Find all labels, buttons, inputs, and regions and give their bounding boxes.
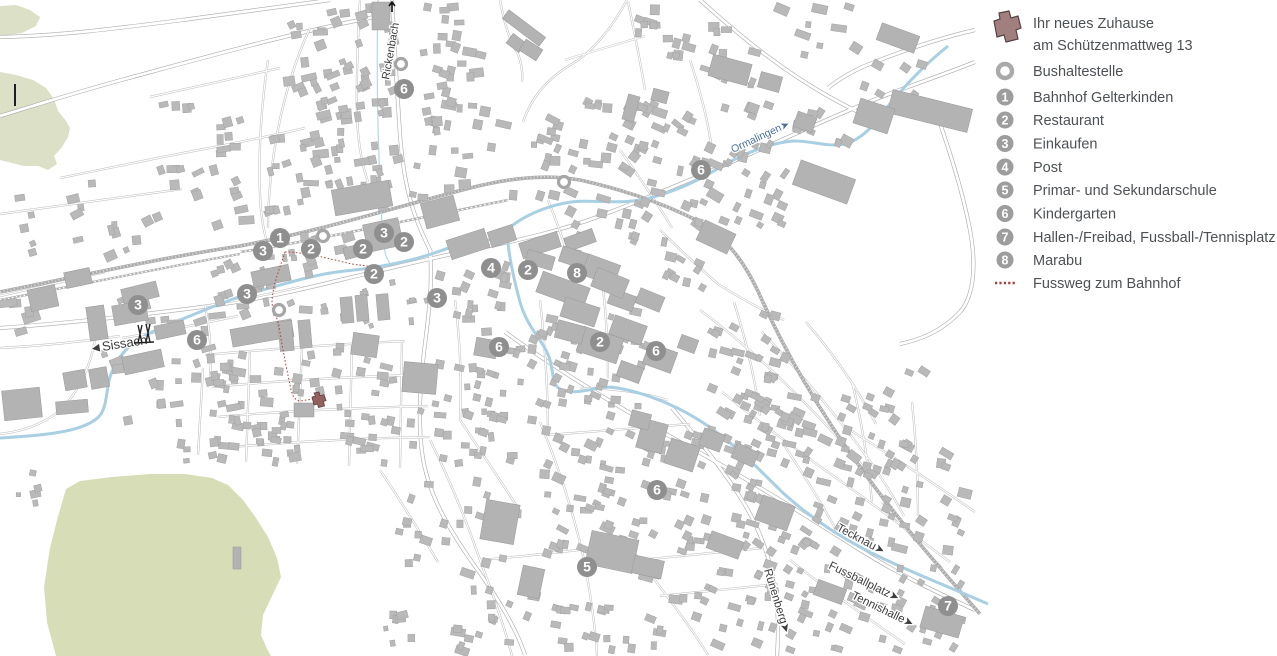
svg-text:Ihr neues Zuhause: Ihr neues Zuhause xyxy=(1033,16,1154,32)
svg-text:2: 2 xyxy=(307,241,315,257)
svg-text:1: 1 xyxy=(276,230,284,246)
svg-text:Bahnhof Gelterkinden: Bahnhof Gelterkinden xyxy=(1033,90,1173,106)
svg-text:6: 6 xyxy=(697,162,705,178)
svg-text:8: 8 xyxy=(573,265,581,281)
svg-text:7: 7 xyxy=(944,598,952,614)
svg-text:5: 5 xyxy=(583,559,591,575)
svg-text:Hallen-/Freibad, Fussball-/Ten: Hallen-/Freibad, Fussball-/Tennisplatz xyxy=(1033,230,1276,246)
svg-text:2: 2 xyxy=(596,334,604,350)
svg-text:2: 2 xyxy=(1002,113,1009,127)
svg-text:3: 3 xyxy=(380,225,388,241)
svg-text:7: 7 xyxy=(1002,230,1009,244)
svg-text:8: 8 xyxy=(1002,253,1009,267)
svg-text:1: 1 xyxy=(1002,90,1009,104)
svg-text:3: 3 xyxy=(433,290,441,306)
svg-text:6: 6 xyxy=(193,332,201,348)
svg-text:2: 2 xyxy=(524,262,532,278)
svg-text:3: 3 xyxy=(134,297,142,313)
svg-text:2: 2 xyxy=(370,266,378,282)
svg-text:Restaurant: Restaurant xyxy=(1033,113,1104,129)
svg-text:Post: Post xyxy=(1033,160,1062,176)
svg-text:6: 6 xyxy=(1002,207,1009,221)
svg-text:6: 6 xyxy=(400,81,408,97)
svg-text:Marabu: Marabu xyxy=(1033,253,1082,269)
svg-text:5: 5 xyxy=(1002,183,1009,197)
svg-text:Kindergarten: Kindergarten xyxy=(1033,207,1116,223)
svg-text:2: 2 xyxy=(400,234,408,250)
svg-text:am Schützenmattweg 13: am Schützenmattweg 13 xyxy=(1033,38,1193,54)
svg-text:6: 6 xyxy=(653,482,661,498)
svg-text:Primar- und Sekundarschule: Primar- und Sekundarschule xyxy=(1033,183,1217,199)
svg-text:4: 4 xyxy=(487,260,495,276)
svg-text:2: 2 xyxy=(359,241,367,257)
svg-text:Einkaufen: Einkaufen xyxy=(1033,137,1098,153)
svg-text:Fussweg zum Bahnhof: Fussweg zum Bahnhof xyxy=(1033,276,1181,292)
svg-text:3: 3 xyxy=(243,286,251,302)
svg-text:4: 4 xyxy=(1002,160,1009,174)
svg-text:6: 6 xyxy=(495,339,503,355)
svg-text:6: 6 xyxy=(652,343,660,359)
svg-text:3: 3 xyxy=(1002,137,1009,151)
svg-text:3: 3 xyxy=(259,243,267,259)
svg-text:Bushaltestelle: Bushaltestelle xyxy=(1033,64,1123,80)
